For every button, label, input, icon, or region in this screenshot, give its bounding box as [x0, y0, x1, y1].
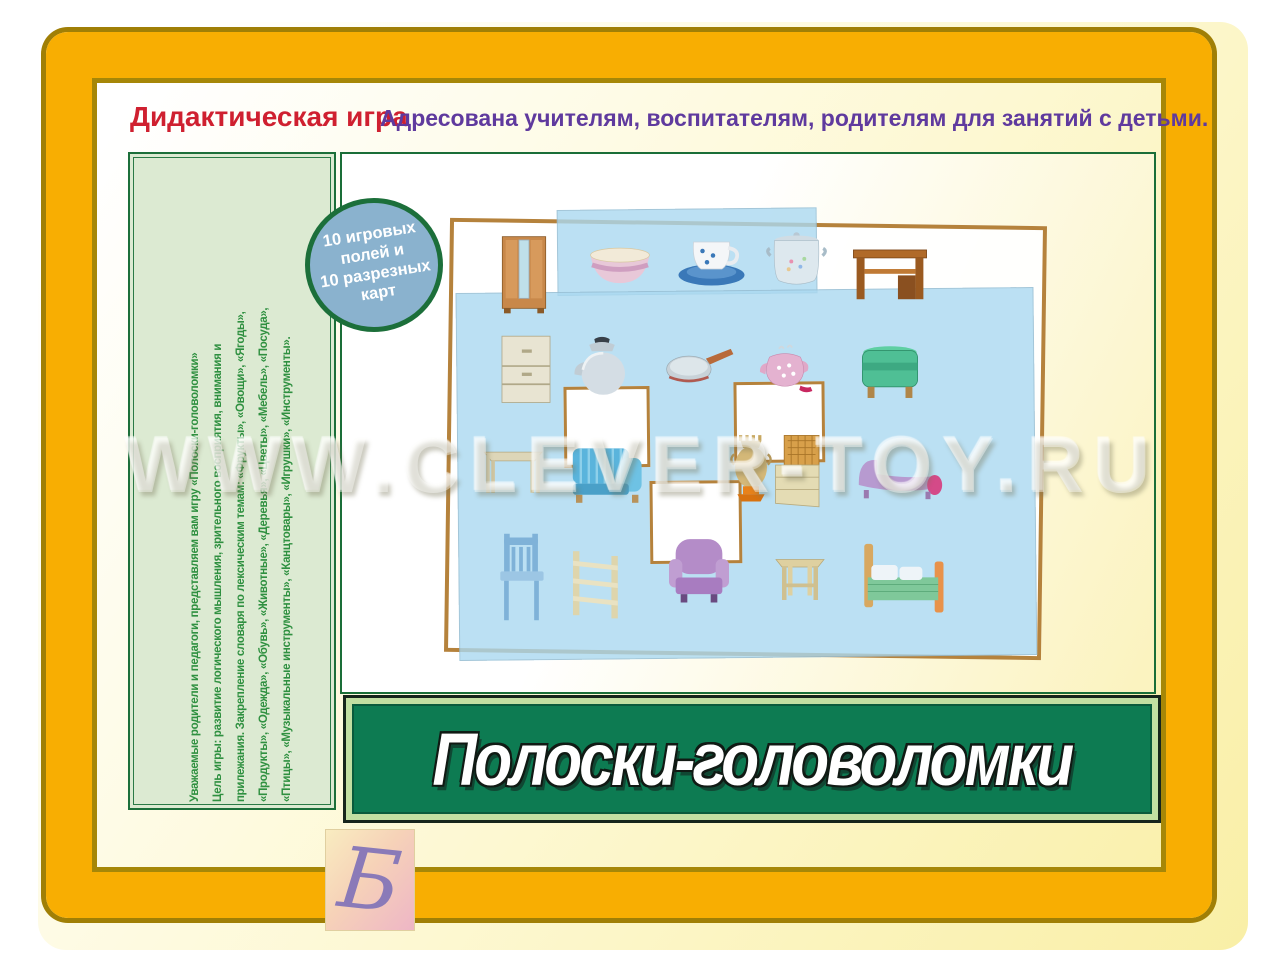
frying-pan-icon — [664, 344, 736, 389]
chaise-longue-icon — [850, 450, 946, 500]
sidebar-line: Уважаемые родители и педагоги, представл… — [184, 316, 207, 802]
desk-icon — [850, 242, 930, 304]
sidebar-rotated-text: Уважаемые родители и педагоги, представл… — [184, 316, 310, 802]
shelf-icon — [565, 547, 629, 621]
title-banner: Полоски-головоломки — [346, 698, 1158, 820]
table-icon — [474, 442, 552, 500]
samovar-icon — [727, 432, 775, 507]
sofa-icon — [564, 442, 652, 506]
contents-badge-text: 10 игровых полей и 10 разрезных карт — [305, 216, 444, 314]
sidebar-line: «Птицы», «Музыкальные инструменты», «Кан… — [276, 316, 299, 802]
contents-badge: 10 игровых полей и 10 разрезных карт — [305, 198, 443, 332]
game-board — [447, 202, 1050, 670]
sidebar-line: прилежания. Закрепление словаря по лекси… — [230, 316, 253, 802]
armchair-icon — [664, 530, 734, 610]
audience-text: Адресована учителям, воспитателям, родит… — [380, 105, 1208, 132]
bed-icon — [859, 540, 947, 620]
pouf-icon — [855, 342, 925, 404]
bowl-icon — [585, 240, 655, 294]
chest-of-drawers-icon — [497, 332, 555, 410]
game-type-label: Дидактическая игра — [130, 101, 408, 133]
publisher-logo-glyph: Б — [335, 835, 405, 925]
description-sidebar: Уважаемые родители и педагоги, представл… — [128, 152, 336, 810]
wicker-cabinet-icon — [768, 432, 830, 512]
sidebar-line: Цель игры: развитие логического мышления… — [207, 316, 230, 802]
teapot-icon — [754, 344, 816, 394]
cup-and-saucer-icon — [674, 234, 749, 289]
publisher-logo: Б — [326, 830, 414, 930]
stool-icon — [770, 550, 830, 608]
game-title: Полоски-головоломки — [433, 716, 1072, 801]
sidebar-line: «Продукты», «Одежда», «Обувь», «Животные… — [253, 316, 276, 802]
kettle-icon — [570, 334, 634, 398]
pot-icon — [764, 227, 829, 292]
main-illustration-panel — [340, 152, 1156, 694]
chair-icon — [492, 530, 550, 624]
wardrobe-icon — [499, 234, 549, 316]
